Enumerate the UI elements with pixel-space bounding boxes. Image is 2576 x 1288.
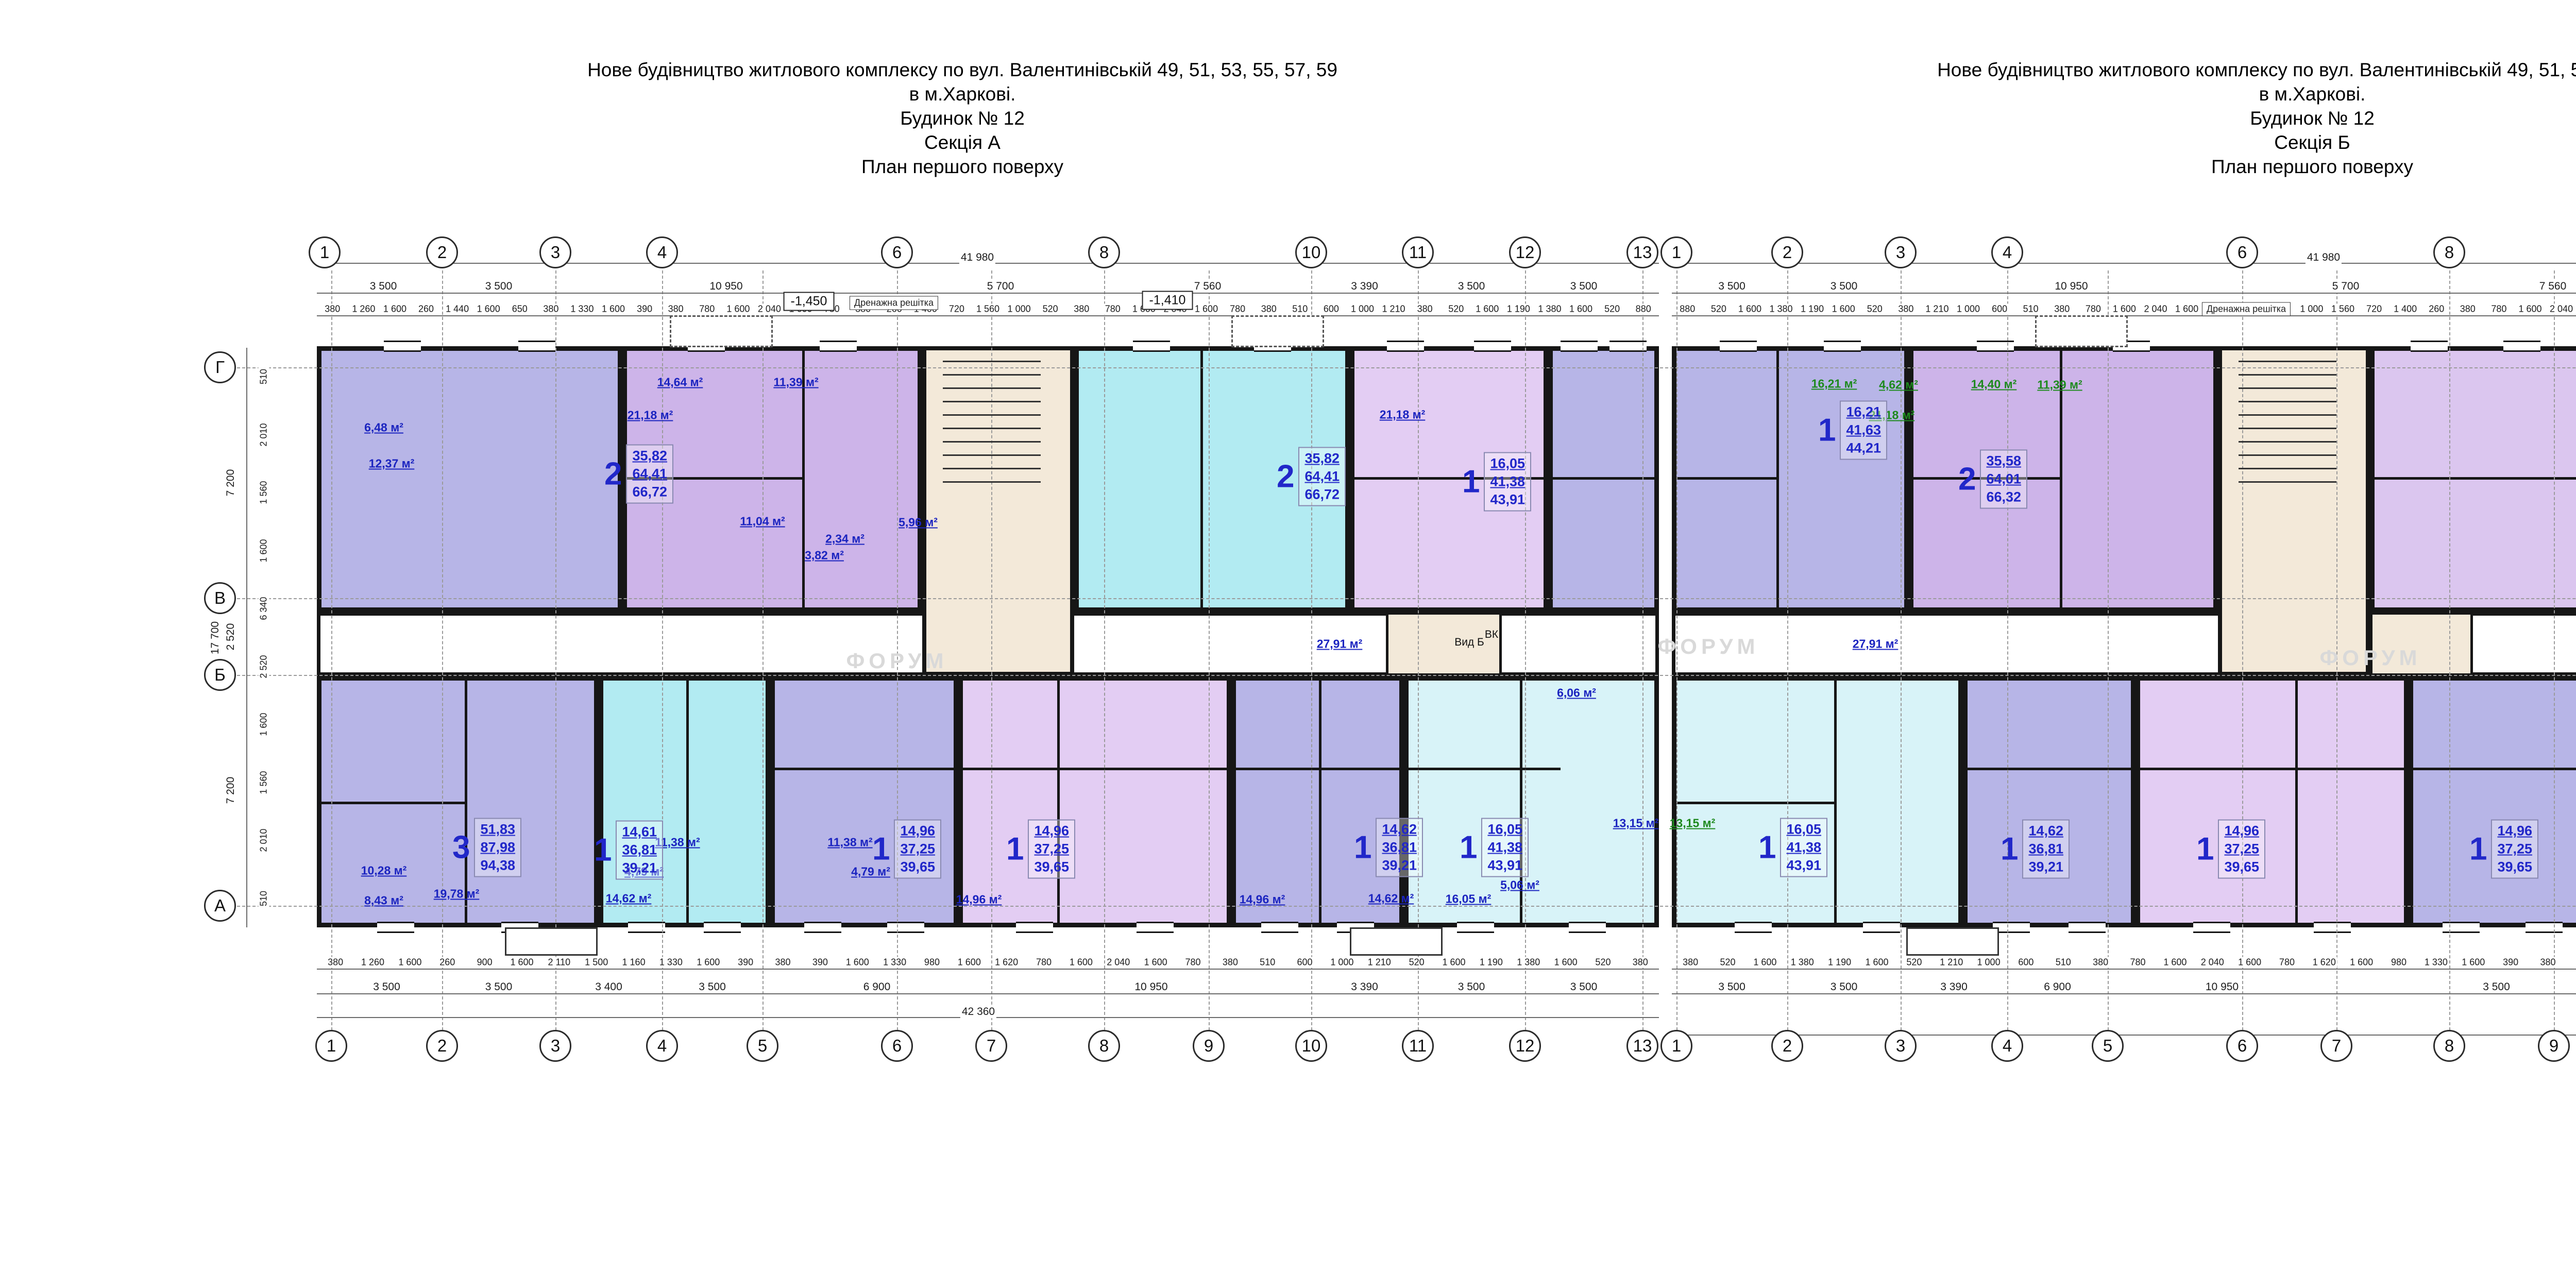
stamp-area-value: 43,91 — [1487, 857, 1522, 875]
axis-bubble: 2 — [1771, 1030, 1803, 1062]
axis-bubble: 8 — [2433, 236, 2465, 268]
dim-label: 1 600 — [476, 304, 502, 315]
stamp-room-count: 1 — [1460, 829, 1477, 866]
stamp-area-value: 41,38 — [1487, 839, 1522, 857]
window — [628, 922, 665, 933]
dim-label: 2 520 — [225, 621, 237, 652]
dim-label: 7 200 — [225, 775, 237, 806]
dim-label: 3 500 — [1456, 981, 1487, 993]
axis-grid-line — [1642, 270, 1643, 1030]
dim-label: 1 600 — [1737, 304, 1763, 315]
apartment-stamp: 114,6236,8139,21 — [2001, 820, 2070, 879]
stamp-areas: 14,6236,8139,21 — [2022, 820, 2070, 879]
dim-label: 1 600 — [1440, 957, 1467, 968]
watermark-text: ФОРУМ — [846, 649, 947, 673]
stamp-area-value: 87,98 — [480, 839, 515, 857]
stamp-area-value: 66,72 — [1304, 486, 1340, 504]
watermark-text: ФОРУМ — [1657, 634, 1759, 659]
axis-bubble: 1 — [315, 1030, 347, 1062]
dim-label: 1 600 — [259, 711, 269, 738]
title-section-b: Нове будівництво житлового комплексу по … — [1745, 58, 2576, 179]
dim-label: 1 380 — [1768, 304, 1794, 315]
stamp-room-count: 1 — [1006, 831, 1024, 868]
dim-label: 1 380 — [1515, 957, 1541, 968]
stamp-room-count: 2 — [1277, 459, 1294, 495]
dim-line — [1672, 293, 2576, 294]
apartment — [317, 346, 622, 612]
axis-bubble: 9 — [1193, 1030, 1225, 1062]
title-line: Будинок № 12 — [1745, 106, 2576, 130]
axis-grid-line — [2449, 270, 2450, 1030]
stamp-area-value: 37,25 — [2224, 840, 2259, 858]
apartment — [599, 676, 770, 927]
window — [1720, 341, 1757, 352]
stamp-area-value: 37,25 — [900, 840, 935, 858]
stamp-room-count: 1 — [594, 832, 612, 869]
dim-label: 1 600 — [1752, 957, 1778, 968]
dim-label: 7 560 — [2538, 280, 2568, 293]
dim-label: 980 — [2389, 957, 2408, 968]
room-area-label: ВК — [1485, 629, 1498, 641]
dim-label: 1 330 — [658, 957, 684, 968]
stamp-area-value: 16,05 — [1487, 821, 1522, 839]
room-area-label: 14,40 м² — [1971, 378, 2017, 392]
stamp-room-count: 2 — [604, 456, 622, 493]
stamp-areas: 14,6136,8139,21 — [616, 821, 663, 880]
axis-bubble: 6 — [881, 236, 913, 268]
dim-label: 780 — [698, 304, 716, 315]
stamp-area-value: 35,82 — [1304, 450, 1340, 468]
room-area-label: 16,05 м² — [1446, 892, 1492, 906]
axis-grid-line — [762, 270, 764, 1030]
dim-label: 780 — [2084, 304, 2103, 315]
dim-label: 780 — [1183, 957, 1202, 968]
dim-label: 510 — [2054, 957, 2073, 968]
stamp-area-value: 16,05 — [1786, 821, 1821, 839]
stamp-area-value: 64,41 — [632, 465, 667, 483]
axis-grid-line — [331, 270, 332, 1030]
dim-label: 780 — [1228, 304, 1247, 315]
axis-bubble: 8 — [2433, 1030, 2465, 1062]
wall-partition — [802, 351, 805, 612]
axis-bubble: 5 — [2092, 1030, 2124, 1062]
dim-label: 1 000 — [1955, 304, 1981, 315]
plan-canvas: Нове будівництво житлового комплексу по … — [0, 0, 2576, 1288]
axis-bubble: 10 — [1295, 1030, 1327, 1062]
room-area-label: 13,15 м² — [1613, 817, 1659, 831]
dim-label: 3 500 — [484, 280, 514, 293]
axis-bubble: 4 — [1991, 236, 2023, 268]
dim-label: 520 — [1041, 304, 1060, 315]
stamp-room-count: 1 — [1354, 829, 1371, 866]
window — [1735, 922, 1772, 933]
dim-label: 380 — [2538, 957, 2557, 968]
overall-dim-label: 42 360 — [960, 1006, 996, 1018]
dim-label: 380 — [326, 957, 345, 968]
dim-label: 3 500 — [697, 981, 727, 993]
dim-label: 1 190 — [1505, 304, 1532, 315]
axis-bubble: 4 — [1991, 1030, 2023, 1062]
stamp-area-value: 64,01 — [1986, 470, 2021, 488]
dim-label: 650 — [511, 304, 529, 315]
axis-letter-line — [237, 675, 2576, 676]
wall-partition — [1965, 768, 2136, 770]
window — [1137, 922, 1174, 933]
apartment — [958, 676, 1231, 927]
window — [384, 341, 421, 352]
dim-label: 520 — [1719, 957, 1737, 968]
wall-partition — [1776, 351, 1779, 612]
dim-label: 1 560 — [259, 480, 269, 506]
dim-label: 1 600 — [382, 304, 408, 315]
room-area-label: 11,39 м² — [773, 376, 818, 389]
stamp-area-value: 41,38 — [1490, 473, 1525, 491]
apartment-stamp: 114,9637,2539,65 — [872, 820, 941, 879]
dim-label: 6 900 — [862, 981, 892, 993]
stamp-area-value: 41,63 — [1846, 421, 1881, 439]
apartment — [2409, 676, 2576, 927]
apartment-stamp: 114,9637,2539,65 — [1006, 820, 1075, 879]
dim-label: 5 700 — [986, 280, 1016, 293]
stamp-area-value: 37,25 — [1034, 840, 1069, 858]
balcony — [2035, 315, 2128, 347]
axis-bubble: 6 — [881, 1030, 913, 1062]
title-line: Нове будівництво житлового комплексу по … — [396, 58, 1529, 82]
dim-label: 1 000 — [1976, 957, 2002, 968]
stamp-area-value: 14,96 — [1034, 822, 1069, 840]
dim-label: 780 — [2278, 957, 2296, 968]
room-area-label: 27,91 м² — [1317, 637, 1363, 651]
dim-label: 600 — [2016, 957, 2035, 968]
axis-bubble: 12 — [1509, 1030, 1541, 1062]
dim-label: 1 600 — [725, 304, 751, 315]
dim-label: 380 — [323, 304, 342, 315]
wall-partition — [772, 768, 958, 770]
apartment — [1963, 676, 2136, 927]
dim-label: 390 — [2501, 957, 2520, 968]
window — [2526, 922, 2563, 933]
room-area-label: 8,43 м² — [364, 894, 403, 908]
room-area-label: Вид Б — [1454, 636, 1484, 649]
axis-bubble: 2 — [426, 1030, 458, 1062]
axis-bubble: 13 — [1626, 1030, 1658, 1062]
apartment-stamp: 235,8264,4166,72 — [604, 445, 673, 504]
dim-label: 1 560 — [975, 304, 1001, 315]
room-area-label: 5,06 м² — [1500, 878, 1539, 892]
dim-label: 380 — [1631, 957, 1650, 968]
dim-label: 380 — [773, 957, 792, 968]
elevation-mark: -1,410 — [1142, 291, 1193, 310]
room-area-label: 13,15 м² — [1670, 817, 1716, 831]
window — [2443, 922, 2480, 933]
room-area-label: 21,18 м² — [628, 409, 673, 422]
room-area-label: 14,62 м² — [1368, 892, 1414, 906]
stamp-area-value: 14,96 — [900, 822, 935, 840]
dim-label: 1 600 — [2174, 304, 2200, 315]
stamp-area-value: 35,82 — [632, 447, 667, 465]
stamp-area-value: 16,05 — [1490, 455, 1525, 473]
stamp-area-value: 14,96 — [2224, 822, 2259, 840]
room-area-label: 10,28 м² — [361, 864, 407, 878]
dim-label: 1 190 — [1799, 304, 1825, 315]
axis-letter-bubble: Б — [204, 659, 236, 691]
wall-partition — [960, 768, 1231, 770]
dim-label: 3 500 — [368, 280, 399, 293]
axis-letter-line — [237, 367, 2576, 368]
stamp-area-value: 14,61 — [622, 823, 657, 841]
balcony — [1231, 315, 1324, 347]
dim-label: 6 340 — [259, 596, 269, 622]
dim-label: 2 040 — [2548, 304, 2574, 315]
stamp-area-value: 41,38 — [1786, 839, 1821, 857]
dim-label: 1 600 — [695, 957, 721, 968]
stamp-area-value: 39,21 — [1382, 857, 1417, 875]
window — [2069, 922, 2106, 933]
wall-partition — [1674, 802, 1834, 804]
dim-label: 520 — [1594, 957, 1612, 968]
axis-bubble: 2 — [1771, 236, 1803, 268]
dim-label: 3 500 — [1829, 280, 1859, 293]
dim-label: 380 — [1072, 304, 1091, 315]
dim-label: 520 — [1709, 304, 1728, 315]
window — [518, 341, 555, 352]
dim-label: 1 600 — [2517, 304, 2543, 315]
stamp-areas: 16,0541,3843,91 — [1481, 818, 1529, 877]
apartment-stamp: 116,0541,3843,91 — [1460, 818, 1529, 877]
axis-grid-line — [1525, 270, 1526, 1030]
stamp-room-count: 1 — [2001, 831, 2018, 868]
axis-grid-line — [1418, 270, 1419, 1030]
dim-label: 1 000 — [1329, 957, 1355, 968]
room-area-label: 5,96 м² — [899, 516, 938, 530]
dim-label: 380 — [1896, 304, 1915, 315]
dim-label: 380 — [1416, 304, 1434, 315]
dim-label: 1 620 — [2311, 957, 2337, 968]
axis-bubble: 7 — [975, 1030, 1007, 1062]
apartment-stamp: 114,9637,2539,65 — [2196, 820, 2265, 879]
window — [1561, 341, 1598, 352]
dim-label: 600 — [1990, 304, 2009, 315]
stamp-area-value: 39,21 — [622, 859, 657, 877]
dim-label: 2 520 — [259, 653, 269, 680]
watermark-text: ФОРУМ — [2319, 646, 2421, 670]
apartment — [1231, 676, 1404, 927]
stamp-area-value: 14,62 — [2028, 822, 2063, 840]
apartment-stamp: 351,8387,9894,38 — [452, 818, 521, 877]
entrance-porch — [505, 927, 598, 956]
stamp-area-value: 94,38 — [480, 857, 515, 875]
stamp-area-value: 16,21 — [1846, 403, 1881, 421]
dim-label: 1 600 — [2460, 957, 2486, 968]
dim-label: 1 600 — [1831, 304, 1857, 315]
room-area-label: 2,34 м² — [825, 532, 865, 546]
entrance-porch — [1350, 927, 1443, 956]
dim-label: 880 — [1634, 304, 1653, 315]
window — [704, 922, 741, 933]
dim-label: 7 200 — [225, 468, 237, 498]
room-area-label: 14,64 м² — [657, 376, 703, 389]
dim-label: 600 — [1322, 304, 1341, 315]
dim-label: 2 040 — [2199, 957, 2226, 968]
stairs-icon — [943, 361, 1041, 484]
stamp-area-value: 35,58 — [1986, 452, 2021, 470]
dim-label: 780 — [2489, 304, 2508, 315]
dim-label: 6 900 — [2042, 981, 2073, 993]
dim-label: 1 160 — [621, 957, 647, 968]
dim-label: 1 600 — [259, 537, 269, 564]
dim-label: 780 — [1104, 304, 1122, 315]
title-line: в м.Харкові. — [396, 82, 1529, 106]
dim-label: 2 110 — [546, 957, 572, 968]
dim-label: 10 950 — [708, 280, 744, 293]
dim-label: 7 560 — [1193, 280, 1223, 293]
stamp-area-value: 39,65 — [1034, 858, 1069, 876]
dim-label: 5 700 — [2331, 280, 2361, 293]
wall-partition — [1057, 678, 1060, 927]
dim-label: 10 950 — [2053, 280, 2089, 293]
wall-partition — [2411, 768, 2576, 770]
window — [1609, 341, 1647, 352]
dim-label: 1 600 — [1553, 957, 1579, 968]
stamp-area-value: 43,91 — [1490, 491, 1525, 509]
stamp-areas: 14,6236,8139,21 — [1376, 818, 1423, 877]
axis-letter-line — [237, 598, 2576, 599]
stamp-areas: 14,9637,2539,65 — [894, 820, 941, 879]
axis-grid-line — [2108, 270, 2109, 1030]
axis-grid-line — [442, 270, 443, 1030]
axis-bubble: 12 — [1509, 236, 1541, 268]
dim-label: 510 — [2022, 304, 2040, 315]
dim-label: 1 600 — [1068, 957, 1094, 968]
room-area-label: 11,39 м² — [2037, 378, 2082, 392]
dim-label: 600 — [1296, 957, 1314, 968]
room-area-label: 16,21 м² — [1811, 377, 1857, 391]
dim-label: 720 — [2365, 304, 2383, 315]
stamp-area-value: 37,25 — [2497, 840, 2532, 858]
stairs-icon — [2239, 361, 2336, 484]
dim-label: 1 600 — [2111, 304, 2138, 315]
dim-label: 520 — [1603, 304, 1621, 315]
dim-label: 390 — [635, 304, 654, 315]
title-line: План першого поверху — [396, 155, 1529, 179]
apartment-stamp: 114,9637,2539,65 — [2469, 820, 2538, 879]
dim-line — [317, 315, 1659, 316]
entry-hall — [1386, 612, 1502, 676]
axis-bubble: 10 — [1295, 236, 1327, 268]
dim-label: 2 040 — [2142, 304, 2168, 315]
wall-partition — [1834, 678, 1837, 927]
dim-label: 1 560 — [259, 769, 269, 795]
dim-label: 880 — [1678, 304, 1697, 315]
room-area-label: 12,37 м² — [369, 457, 415, 471]
overall-dim-label: 41 980 — [2306, 251, 2342, 264]
stamp-area-value: 36,81 — [1382, 839, 1417, 857]
dim-label: 1 560 — [2330, 304, 2356, 315]
axis-bubble: 11 — [1402, 1030, 1434, 1062]
dim-label: 1 330 — [2423, 957, 2449, 968]
dim-label: 380 — [541, 304, 560, 315]
dim-label: 3 400 — [594, 981, 624, 993]
dim-line — [1672, 993, 2576, 994]
apartment — [2136, 676, 2409, 927]
dim-label: 3 500 — [1829, 981, 1859, 993]
dim-label: 1 210 — [1381, 304, 1407, 315]
window — [1133, 341, 1170, 352]
dim-label: 380 — [2053, 304, 2071, 315]
dim-label: 380 — [2091, 957, 2110, 968]
stamp-area-value: 36,81 — [622, 841, 657, 859]
stamp-area-value: 14,96 — [2497, 822, 2532, 840]
dim-label: 2 040 — [1105, 957, 1131, 968]
dim-label: 1 000 — [1006, 304, 1032, 315]
axis-bubble: 3 — [1885, 1030, 1917, 1062]
dim-label: 380 — [1681, 957, 1700, 968]
wall-partition — [2138, 768, 2409, 770]
window — [804, 922, 841, 933]
axis-bubble: 11 — [1402, 236, 1434, 268]
dim-label: 1 330 — [882, 957, 908, 968]
title-line: Секція Б — [1745, 130, 2576, 155]
apartment-stamp: 114,6236,8139,21 — [1354, 818, 1423, 877]
dim-label: 980 — [923, 957, 941, 968]
wall-partition — [1406, 768, 1561, 770]
dim-label: 260 — [2427, 304, 2446, 315]
title-line: Будинок № 12 — [396, 106, 1529, 130]
stamp-area-value: 39,65 — [2224, 858, 2259, 876]
stamp-room-count: 1 — [1462, 464, 1480, 500]
dim-line — [317, 293, 1659, 294]
dim-label: 1 000 — [1349, 304, 1376, 315]
dim-label: 3 500 — [1456, 280, 1487, 293]
dim-label: 1 330 — [569, 304, 595, 315]
room-area-label: 6,06 м² — [1557, 686, 1596, 700]
apartment-stamp: 235,5864,0166,32 — [1958, 450, 2027, 509]
window — [2411, 341, 2448, 352]
window — [1569, 922, 1606, 933]
axis-grid-line — [1311, 270, 1312, 1030]
room-area-label: 3,82 м² — [805, 549, 844, 563]
dim-label: 2 040 — [756, 304, 783, 315]
window — [1863, 922, 1900, 933]
apartment-stamp: 116,2141,6344,21 — [1818, 401, 1887, 460]
apartment-stamp: 116,0541,3843,91 — [1758, 818, 1827, 877]
stamp-area-value: 43,91 — [1786, 857, 1821, 875]
dim-label: 1 600 — [1143, 957, 1169, 968]
window — [2193, 922, 2230, 933]
axis-grid-line — [1104, 270, 1105, 1030]
stamp-areas: 16,2141,6344,21 — [1840, 401, 1887, 460]
dim-line — [317, 993, 1659, 994]
dim-label: 780 — [2128, 957, 2147, 968]
dim-label: 3 390 — [1349, 981, 1380, 993]
axis-letter-bubble: А — [204, 890, 236, 922]
window — [1016, 922, 1053, 933]
stamp-areas: 14,9637,2539,65 — [2491, 820, 2538, 879]
axis-grid-line — [2554, 270, 2555, 1030]
title-line: План першого поверху — [1745, 155, 2576, 179]
stamp-areas: 35,8264,4166,72 — [1298, 447, 1346, 506]
axis-bubble: 1 — [1660, 236, 1692, 268]
window — [1824, 341, 1861, 352]
axis-bubble: 3 — [539, 1030, 571, 1062]
stamp-area-value: 66,72 — [632, 483, 667, 501]
axis-bubble: 1 — [309, 236, 341, 268]
window — [820, 341, 857, 352]
dim-label: 3 390 — [1939, 981, 1969, 993]
window — [887, 922, 924, 933]
dim-line — [317, 969, 1659, 970]
dim-label: 520 — [1408, 957, 1426, 968]
